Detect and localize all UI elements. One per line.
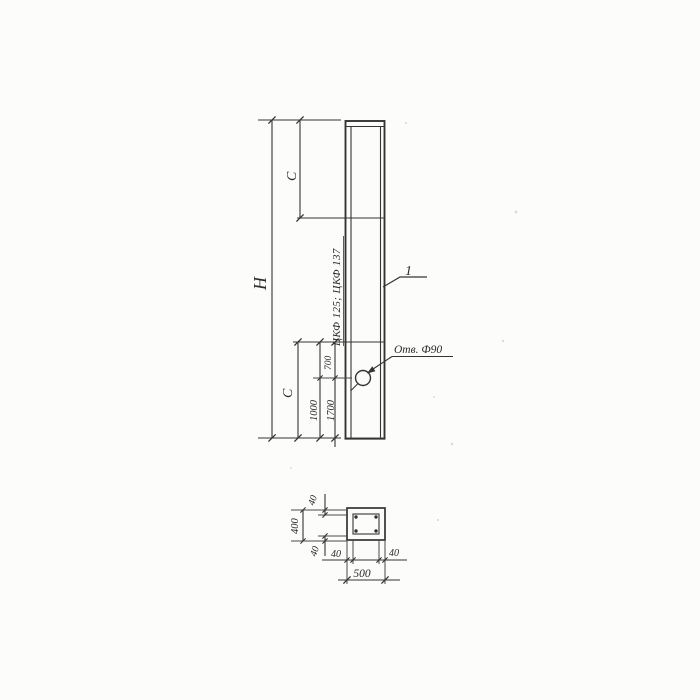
section-wall-top-label: 40 [306,494,320,507]
elevation-view: Н С С 700 1000 1700 ЦКФ 125; ЦКФ 137 1 О… [250,116,453,447]
hole-callout: Отв. Ф90 [351,344,454,391]
hole-label: Отв. Ф90 [394,344,442,356]
section-bottom-dimensions: 40 40 500 [322,540,407,584]
section-wall-right-label: 40 [389,548,399,559]
section-wall-bottom-label: 40 [308,545,322,558]
section-view: 40 400 40 40 40 500 [290,494,407,584]
scan-speckles [290,122,517,521]
dim-label-700: 700 [324,356,334,371]
section-outline [347,508,385,540]
dim-label-H: Н [250,276,270,291]
technical-drawing-canvas: Н С С 700 1000 1700 ЦКФ 125; ЦКФ 137 1 О… [0,0,700,700]
dim-label-1700: 1700 [326,399,337,421]
dim-label-C-bottom: С [281,388,296,398]
dim-label-1000: 1000 [309,399,320,421]
position-leader: 1 [383,264,427,287]
leader-arrowhead-icon [367,366,375,373]
rebar-dot [374,515,377,518]
dim-label-C-top: С [285,171,300,181]
section-height-label: 400 [290,518,301,535]
section-wall-left-label: 40 [331,549,341,560]
dimension-ticks [268,116,338,441]
section-width-label: 500 [353,568,371,580]
rebar-dot [354,515,357,518]
drawing-sheet: Н С С 700 1000 1700 ЦКФ 125; ЦКФ 137 1 О… [0,0,700,700]
product-mark: ЦКФ 125; ЦКФ 137 [331,236,344,347]
position-number: 1 [405,264,412,279]
product-mark-text: ЦКФ 125; ЦКФ 137 [331,248,343,347]
rebar-dot [374,529,377,532]
rebar-dot [354,529,357,532]
